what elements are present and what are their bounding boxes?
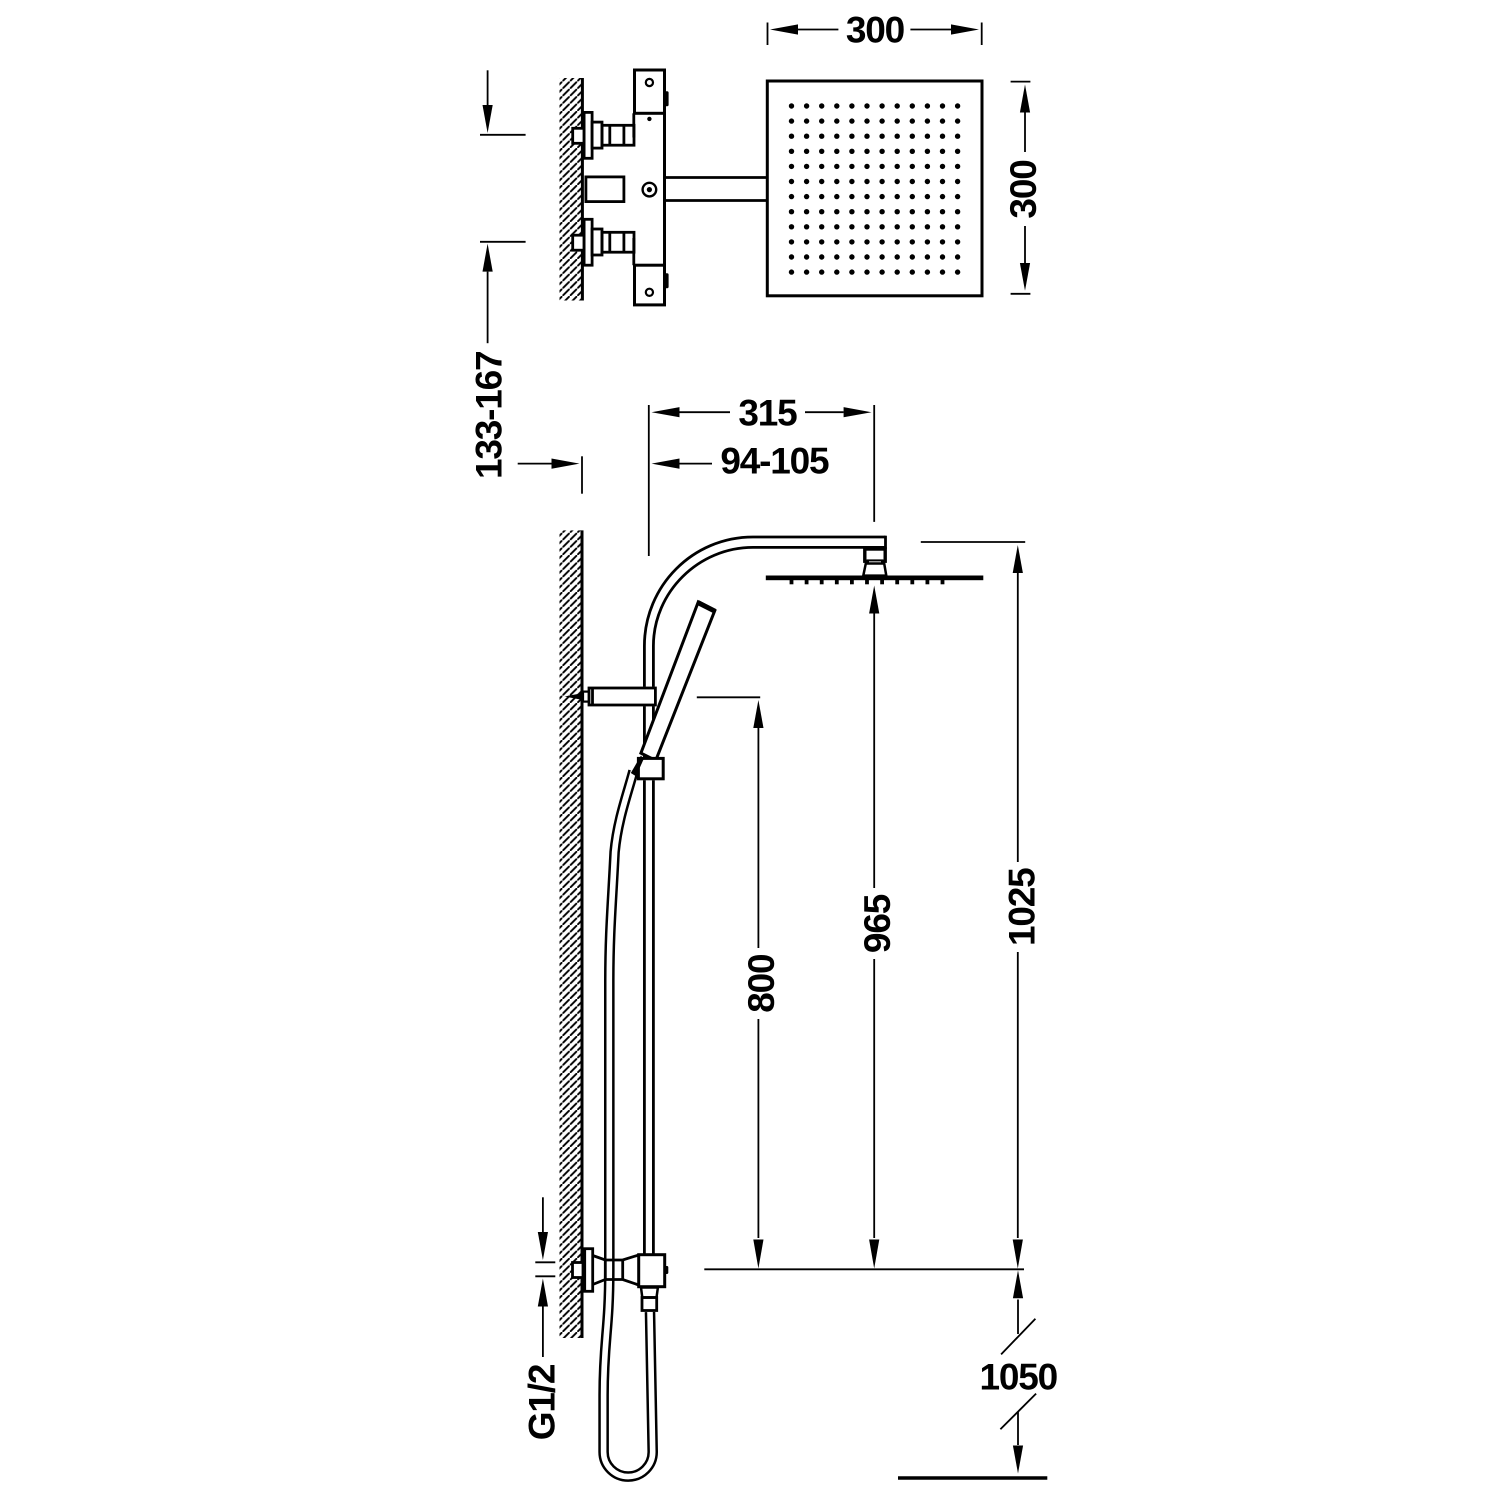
svg-text:800: 800 <box>741 954 782 1013</box>
svg-text:315: 315 <box>738 392 797 433</box>
svg-text:94-105: 94-105 <box>720 440 829 481</box>
svg-text:1050: 1050 <box>980 1356 1058 1397</box>
svg-text:1025: 1025 <box>1001 868 1042 946</box>
svg-text:300: 300 <box>1003 160 1044 219</box>
svg-text:965: 965 <box>857 894 898 953</box>
svg-text:300: 300 <box>846 10 905 51</box>
svg-text:G1/2: G1/2 <box>522 1364 563 1440</box>
svg-text:133-167: 133-167 <box>469 352 510 479</box>
